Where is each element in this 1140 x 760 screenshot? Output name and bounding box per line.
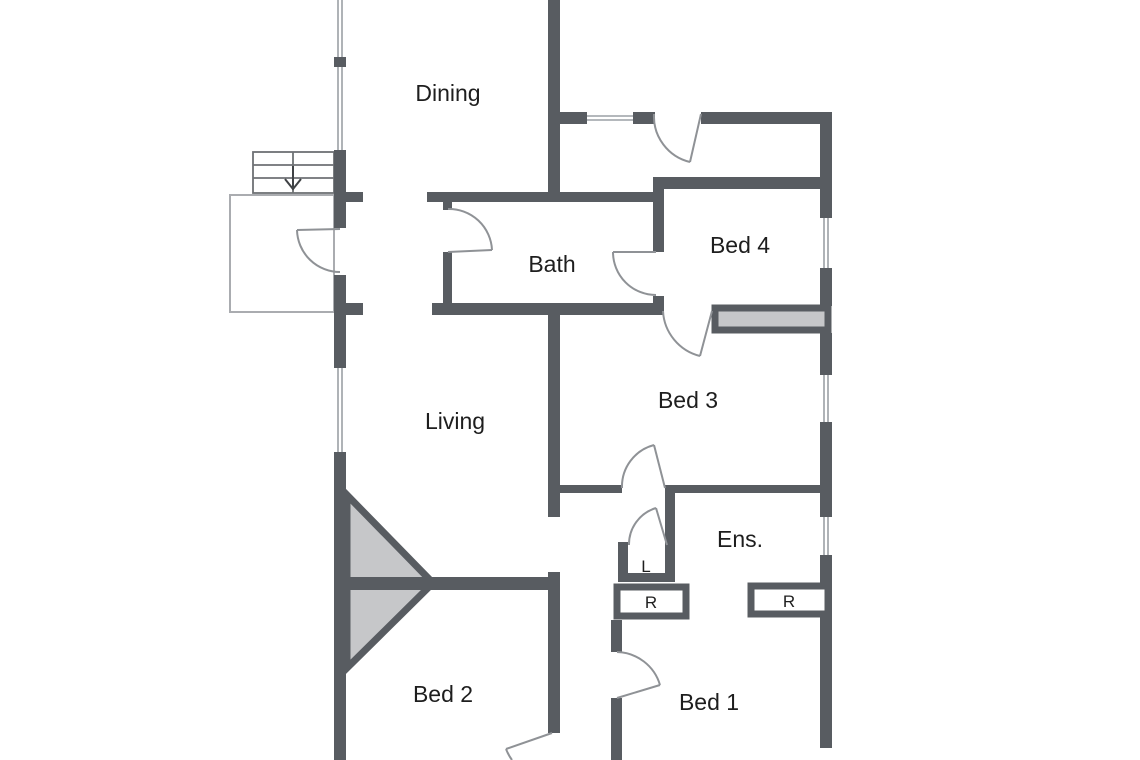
walls xyxy=(334,0,832,760)
room-label-bed3: Bed 3 xyxy=(658,387,718,413)
window-left-3 xyxy=(334,368,346,452)
bed3-top-door xyxy=(663,311,712,356)
window-top xyxy=(587,112,633,124)
bed2-door xyxy=(506,733,552,760)
wardrobe-band xyxy=(715,308,828,330)
room-label-bath: Bath xyxy=(528,251,575,277)
linen-door xyxy=(629,508,667,545)
room-label-bed2: Bed 2 xyxy=(413,681,473,707)
room-label-bed1: Bed 1 xyxy=(679,689,739,715)
doors xyxy=(297,114,712,760)
closet-label-robe-left: R xyxy=(645,593,657,612)
window-left-2 xyxy=(334,67,346,150)
room-label-bed4: Bed 4 xyxy=(710,232,770,258)
bed1-door xyxy=(617,652,660,698)
window-right-2 xyxy=(820,375,832,422)
room-label-living: Living xyxy=(425,408,485,434)
bed4-door xyxy=(613,252,656,295)
hall-top-door xyxy=(654,114,701,162)
window-right-1 xyxy=(820,218,832,268)
bed3-bottom-door xyxy=(622,445,665,488)
room-label-ens: Ens. xyxy=(717,526,763,552)
room-label-dining: Dining xyxy=(415,80,480,106)
bath-door xyxy=(448,209,492,252)
closet-label-robe-right: R xyxy=(783,592,795,611)
windows xyxy=(334,0,832,555)
floor-plan: Dining Bath Bed 4 Living Bed 3 Ens. Bed … xyxy=(0,0,1140,760)
porch-outline xyxy=(230,195,334,312)
closet-label-linen: L xyxy=(641,557,650,576)
window-right-3 xyxy=(820,517,832,555)
window-left-1 xyxy=(334,0,346,57)
